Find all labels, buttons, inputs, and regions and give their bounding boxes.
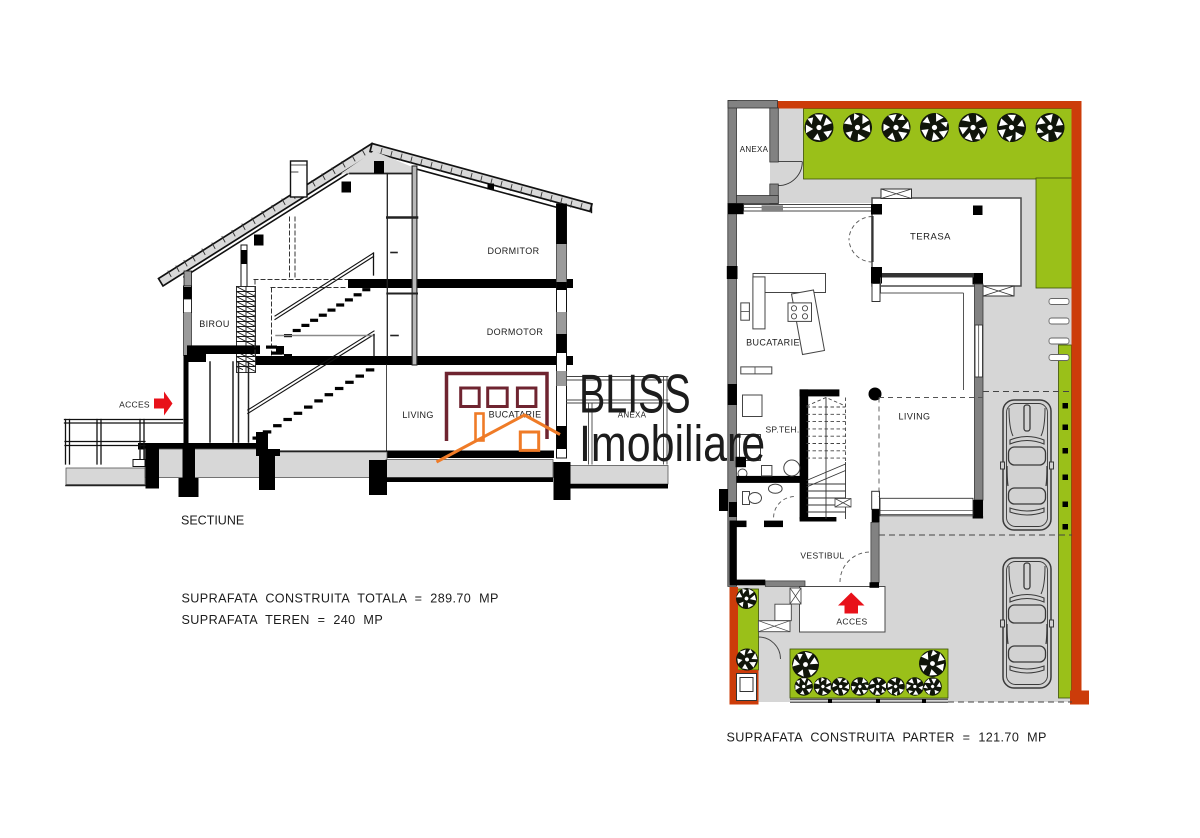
svg-text:TERASA: TERASA (910, 232, 951, 243)
svg-text:LIVING: LIVING (899, 412, 931, 422)
svg-text:Imobiliare: Imobiliare (579, 415, 765, 472)
svg-text:SP.TEH.: SP.TEH. (765, 425, 799, 435)
svg-text:SUPRAFATA TEREN = 240 MP: SUPRAFATA TEREN = 240 MP (182, 613, 384, 627)
svg-text:BIROU: BIROU (199, 319, 230, 329)
svg-text:DORMOTOR: DORMOTOR (487, 327, 544, 337)
svg-text:VESTIBUL: VESTIBUL (800, 551, 844, 561)
svg-text:BUCATARIE: BUCATARIE (489, 410, 542, 420)
svg-text:BUCATARIE: BUCATARIE (746, 338, 800, 348)
svg-text:SUPRAFATA CONSTRUITA TOTALA =: SUPRAFATA CONSTRUITA TOTALA = 289.70 MP (182, 592, 499, 606)
svg-text:DORMITOR: DORMITOR (487, 246, 539, 256)
svg-text:SUPRAFATA CONSTRUITA PARTER =: SUPRAFATA CONSTRUITA PARTER = 121.70 MP (727, 731, 1047, 745)
svg-text:ACCES: ACCES (119, 400, 150, 410)
svg-text:ACCES: ACCES (836, 617, 867, 627)
svg-text:LIVING: LIVING (402, 410, 433, 420)
svg-text:ANEXA: ANEXA (740, 145, 769, 154)
svg-text:SECTIUNE: SECTIUNE (181, 514, 244, 528)
